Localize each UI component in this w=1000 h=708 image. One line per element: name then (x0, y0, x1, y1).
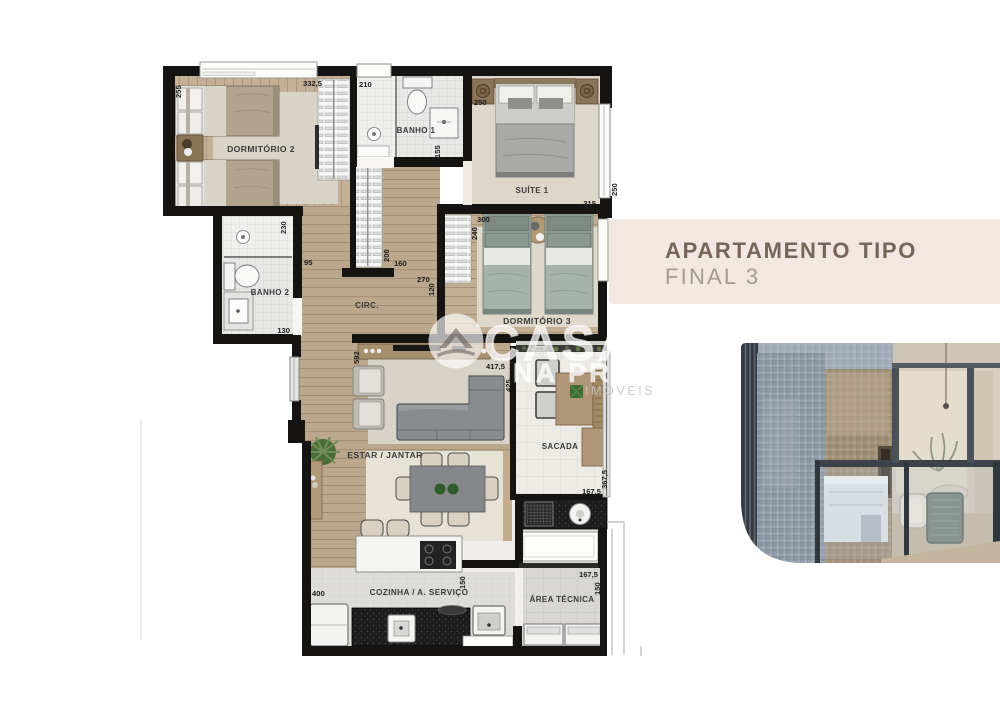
svg-text:200: 200 (382, 249, 391, 262)
svg-text:300: 300 (477, 215, 490, 224)
svg-text:332,5: 332,5 (303, 79, 323, 88)
svg-text:DORMITÓRIO 2: DORMITÓRIO 2 (227, 143, 295, 154)
svg-text:BANHO 2: BANHO 2 (251, 288, 290, 297)
svg-text:COZINHA / A. SERVIÇO: COZINHA / A. SERVIÇO (370, 588, 469, 597)
svg-text:230: 230 (279, 221, 288, 234)
svg-text:120: 120 (427, 283, 436, 296)
svg-text:155: 155 (433, 145, 442, 158)
svg-text:95: 95 (304, 258, 313, 267)
svg-text:BANHO 1: BANHO 1 (397, 126, 436, 135)
svg-text:130: 130 (277, 326, 290, 335)
svg-text:160: 160 (394, 259, 407, 268)
svg-text:592: 592 (352, 351, 361, 364)
svg-text:167,5: 167,5 (582, 487, 602, 496)
svg-text:210: 210 (359, 80, 372, 89)
svg-text:270: 270 (417, 275, 430, 284)
svg-text:IMÓVEIS: IMÓVEIS (585, 383, 655, 398)
svg-text:150: 150 (458, 576, 467, 589)
svg-text:ÁREA TÉCNICA: ÁREA TÉCNICA (530, 595, 595, 604)
svg-text:150: 150 (593, 582, 602, 595)
svg-text:SACADA: SACADA (542, 442, 579, 451)
svg-text:ESTAR / JANTAR: ESTAR / JANTAR (347, 450, 423, 460)
svg-text:SUÍTE 1: SUÍTE 1 (515, 186, 548, 195)
svg-text:250: 250 (474, 98, 487, 107)
svg-text:240: 240 (470, 227, 479, 240)
svg-text:315: 315 (583, 199, 596, 208)
svg-text:255: 255 (174, 85, 183, 98)
svg-text:167,5: 167,5 (579, 570, 599, 579)
svg-text:400: 400 (312, 589, 325, 598)
svg-text:CIRC.: CIRC. (355, 301, 379, 310)
svg-text:425: 425 (504, 379, 513, 392)
svg-text:250: 250 (610, 183, 619, 196)
svg-text:367,5: 367,5 (600, 469, 609, 489)
